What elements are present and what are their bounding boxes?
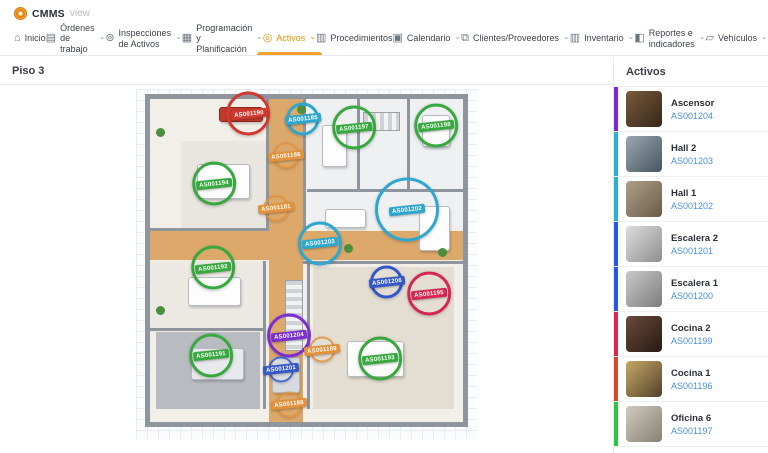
asset-map-badge[interactable]: AS001195 (411, 289, 447, 298)
asset-list-item[interactable]: Oficina 6 AS001197 (614, 402, 768, 447)
nav-item-label: Clientes/Proveedores (473, 33, 559, 43)
brand[interactable]: CMMS view (0, 0, 768, 22)
badge-asset-id: AS001197 (339, 123, 369, 132)
nav-item[interactable]: ▥ Procedimientos ⌄ (316, 22, 392, 55)
nav-item[interactable]: ◎ Activos ⌄ (263, 22, 316, 55)
chevron-down-icon: ⌄ (699, 32, 706, 41)
asset-list-item[interactable]: Hall 1 AS001202 (614, 177, 768, 222)
nav-item-label: Inicio (25, 33, 46, 43)
asset-list-item[interactable]: Ascensor AS001204 (614, 87, 768, 132)
asset-accent-bar (614, 402, 618, 446)
asset-map-badge[interactable]: AS001201 (263, 365, 299, 374)
asset-map-badge[interactable]: AS001198 (418, 121, 454, 130)
main-content: Piso 3 (0, 57, 613, 453)
nav-item[interactable]: ⌂ Inicio ⌄ (14, 22, 46, 55)
nav-item[interactable]: ◧ Reportes e indicadores ⌄ (634, 22, 705, 55)
asset-map-badge[interactable]: AS001206 (369, 277, 405, 286)
nav-item[interactable]: ⧉ Clientes/Proveedores ⌄ (461, 22, 570, 55)
chevron-down-icon: ⌄ (99, 32, 106, 41)
asset-map-badge[interactable]: AS001186 (268, 151, 304, 160)
asset-map-badge[interactable]: AS001181 (258, 204, 294, 213)
nav-item-label: Órdenes de trabajo (60, 23, 95, 54)
nav-item-label: Programación y Planificación (196, 23, 252, 54)
asset-list-item[interactable]: Cocina 2 AS001199 (614, 312, 768, 357)
asset-badge-layer: AS001190 AS001185 AS001197 AS001198 AS00… (136, 89, 477, 439)
chevron-down-icon: ⌄ (256, 32, 263, 41)
asset-thumbnail (626, 316, 662, 352)
badge-asset-id: AS001202 (392, 205, 422, 214)
asset-thumbnail (626, 226, 662, 262)
badge-asset-id: AS001190 (233, 109, 263, 118)
chevron-down-icon: ⌄ (761, 32, 768, 41)
nav-item[interactable]: ▤ Órdenes de trabajo ⌄ (46, 22, 106, 55)
brand-name: CMMS (32, 8, 65, 20)
badge-asset-id: AS001188 (274, 399, 304, 408)
work-orders-icon: ▤ (46, 32, 56, 45)
asset-thumbnail (626, 181, 662, 217)
asset-map-badge[interactable]: AS001189 (304, 345, 340, 354)
nav-item[interactable]: ▦ Programación y Planificación ⌄ (182, 22, 263, 55)
asset-accent-bar (614, 177, 618, 221)
asset-accent-bar (614, 132, 618, 176)
asset-list-item[interactable]: Cocina 1 AS001196 (614, 357, 768, 402)
badge-asset-id: AS001193 (365, 354, 395, 363)
asset-id-link[interactable]: AS001203 (671, 156, 713, 166)
nav-item-label: Vehículos (718, 33, 757, 43)
chevron-down-icon: ⌄ (175, 32, 182, 41)
asset-thumbnail (626, 136, 662, 172)
vehicles-icon: ▱ (705, 32, 713, 45)
badge-asset-id: AS001194 (199, 179, 229, 188)
asset-accent-bar (614, 87, 618, 131)
nav-item[interactable]: ▣ Calendario ⌄ (392, 22, 461, 55)
badge-asset-id: AS001203 (305, 238, 335, 247)
asset-thumbnail (626, 271, 662, 307)
asset-map-badge[interactable]: AS001191 (193, 351, 229, 360)
asset-name: Hall 1 (671, 188, 713, 199)
asset-list-item[interactable]: Escalera 1 AS001200 (614, 267, 768, 312)
asset-map-badge[interactable]: AS001197 (336, 123, 372, 132)
asset-id-link[interactable]: AS001199 (671, 336, 712, 346)
page-title: Piso 3 (0, 57, 613, 85)
floor-plan: AS001190 AS001185 AS001197 AS001198 AS00… (136, 89, 477, 439)
floor-plan-grid: AS001190 AS001185 AS001197 AS001198 AS00… (136, 89, 477, 439)
main-nav: ⌂ Inicio ⌄ ▤ Órdenes de trabajo ⌄ ⊚ Insp… (0, 22, 768, 55)
asset-map-badge[interactable]: AS001188 (272, 400, 308, 409)
asset-name: Hall 2 (671, 143, 713, 154)
nav-item-label: Calendario (407, 33, 451, 43)
asset-id-link[interactable]: AS001196 (671, 381, 712, 391)
asset-map-badge[interactable]: AS001190 (231, 109, 267, 118)
asset-id-link[interactable]: AS001200 (671, 291, 718, 301)
nav-item[interactable]: ▱ Vehículos ⌄ (705, 22, 767, 55)
badge-asset-id: AS001186 (271, 151, 301, 160)
home-icon: ⌂ (14, 32, 21, 45)
chevron-down-icon: ⌄ (454, 32, 461, 41)
asset-list-item[interactable]: Escalera 2 AS001201 (614, 222, 768, 267)
badge-asset-id: AS001181 (261, 203, 291, 212)
badge-asset-id: AS001185 (288, 114, 318, 123)
asset-map-badge[interactable]: AS001192 (195, 263, 231, 272)
nav-item[interactable]: ⊚ Inspecciones de Activos ⌄ (105, 22, 181, 55)
badge-asset-id: AS001189 (307, 345, 337, 354)
asset-map-badge[interactable]: AS001194 (197, 179, 233, 188)
sidebar-title: Activos (614, 57, 768, 87)
asset-name: Ascensor (671, 98, 714, 109)
asset-accent-bar (614, 267, 618, 311)
nav-item-label: Inventario (584, 33, 624, 43)
nav-item[interactable]: ▥ Inventario ⌄ (570, 22, 635, 55)
chevron-down-icon: ⌄ (309, 32, 316, 41)
asset-thumbnail (626, 406, 662, 442)
asset-name: Cocina 1 (671, 368, 712, 379)
reports-icon: ◧ (634, 32, 644, 45)
assets-sidebar: Activos Ascensor AS001204 Hall 2 AS00120… (613, 57, 768, 453)
badge-asset-id: AS001195 (414, 289, 444, 298)
chevron-down-icon: ⌄ (563, 32, 570, 41)
nav-item-label: Procedimientos (330, 33, 392, 43)
inspections-icon: ⊚ (105, 32, 114, 45)
asset-accent-bar (614, 222, 618, 266)
badge-asset-id: AS001191 (196, 350, 226, 359)
asset-list: Ascensor AS001204 Hall 2 AS001203 Hall 1… (614, 87, 768, 447)
asset-name: Cocina 2 (671, 323, 712, 334)
procedures-icon: ▥ (316, 32, 326, 45)
top-bar: CMMS view ⌂ Inicio ⌄ ▤ Órdenes de trabaj… (0, 0, 768, 56)
asset-map-badge[interactable]: AS001202 (389, 205, 425, 214)
asset-thumbnail (626, 361, 662, 397)
badge-asset-id: AS001192 (198, 263, 228, 272)
asset-thumbnail (626, 91, 662, 127)
asset-id-link[interactable]: AS001204 (671, 111, 714, 121)
nav-item-label: Reportes e indicadores (649, 28, 695, 49)
asset-map-badge[interactable]: AS001185 (285, 114, 321, 123)
badge-asset-id: AS001206 (371, 277, 401, 286)
asset-name: Oficina 6 (671, 413, 712, 424)
asset-accent-bar (614, 312, 618, 356)
asset-name: Escalera 1 (671, 278, 718, 289)
asset-id-link[interactable]: AS001201 (671, 246, 718, 256)
asset-map-badge[interactable]: AS001204 (271, 331, 307, 340)
badge-asset-id: AS001198 (421, 121, 451, 130)
asset-id-link[interactable]: AS001197 (671, 426, 712, 436)
brand-logo-icon (14, 7, 27, 20)
asset-map-badge[interactable]: AS001193 (362, 354, 398, 363)
planning-icon: ▦ (182, 32, 192, 45)
asset-name: Escalera 2 (671, 233, 718, 244)
clients-icon: ⧉ (461, 32, 469, 45)
badge-asset-id: AS001204 (274, 331, 304, 340)
brand-suffix: view (70, 8, 90, 19)
assets-icon: ◎ (263, 32, 273, 45)
asset-accent-bar (614, 357, 618, 401)
nav-item-label: Inspecciones de Activos (119, 28, 172, 49)
asset-list-item[interactable]: Hall 2 AS001203 (614, 132, 768, 177)
badge-asset-id: AS001201 (266, 364, 296, 373)
asset-id-link[interactable]: AS001202 (671, 201, 713, 211)
calendar-icon: ▣ (392, 32, 402, 45)
inventory-icon: ▥ (570, 32, 580, 45)
nav-item-label: Activos (276, 33, 305, 43)
chevron-down-icon: ⌄ (628, 32, 635, 41)
asset-map-badge[interactable]: AS001203 (302, 239, 338, 248)
